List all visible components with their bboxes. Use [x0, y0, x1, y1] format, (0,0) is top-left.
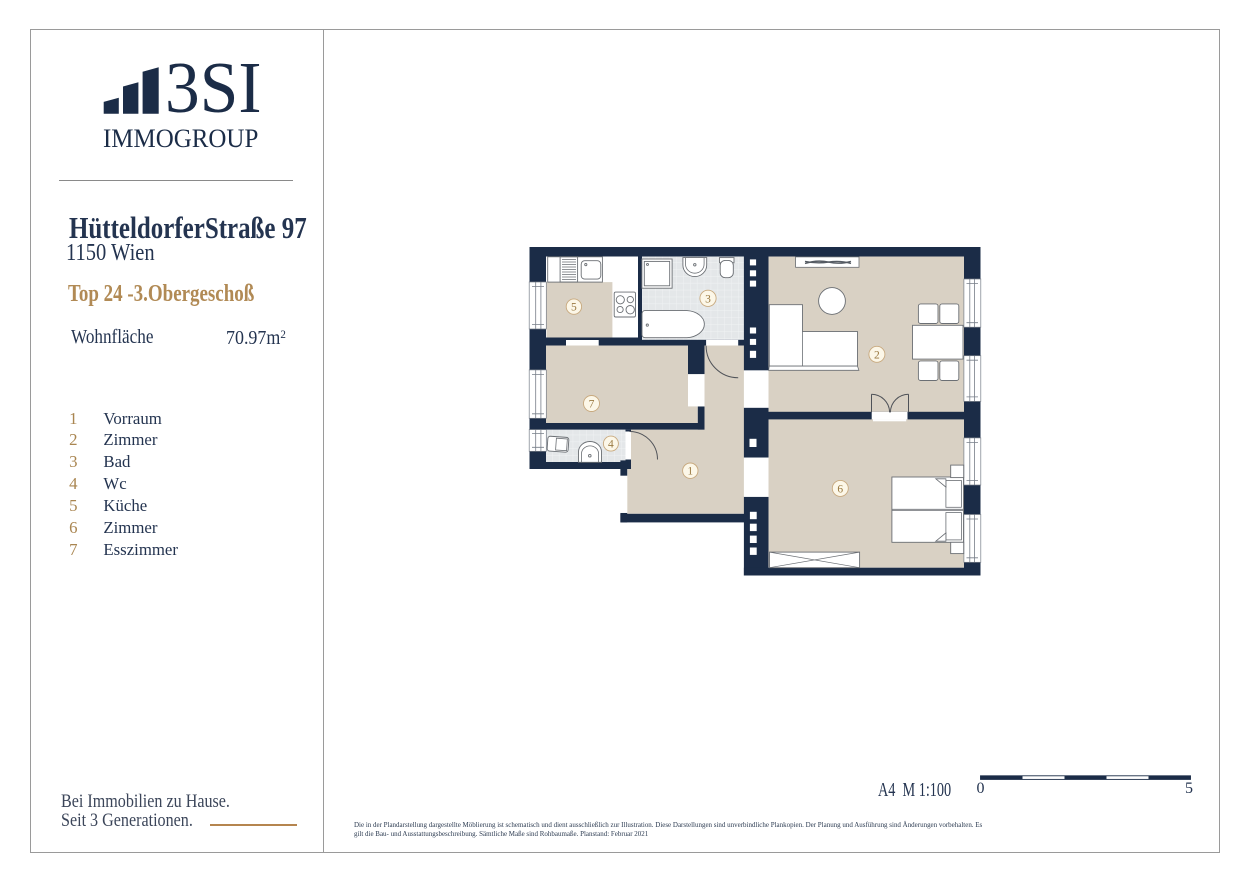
svg-text:5: 5 [571, 302, 577, 314]
svg-text:3: 3 [705, 293, 711, 305]
svg-text:2: 2 [874, 349, 880, 361]
svg-text:6: 6 [837, 483, 843, 495]
svg-text:7: 7 [589, 399, 595, 411]
svg-text:1: 1 [687, 466, 693, 478]
svg-text:4: 4 [608, 439, 614, 451]
